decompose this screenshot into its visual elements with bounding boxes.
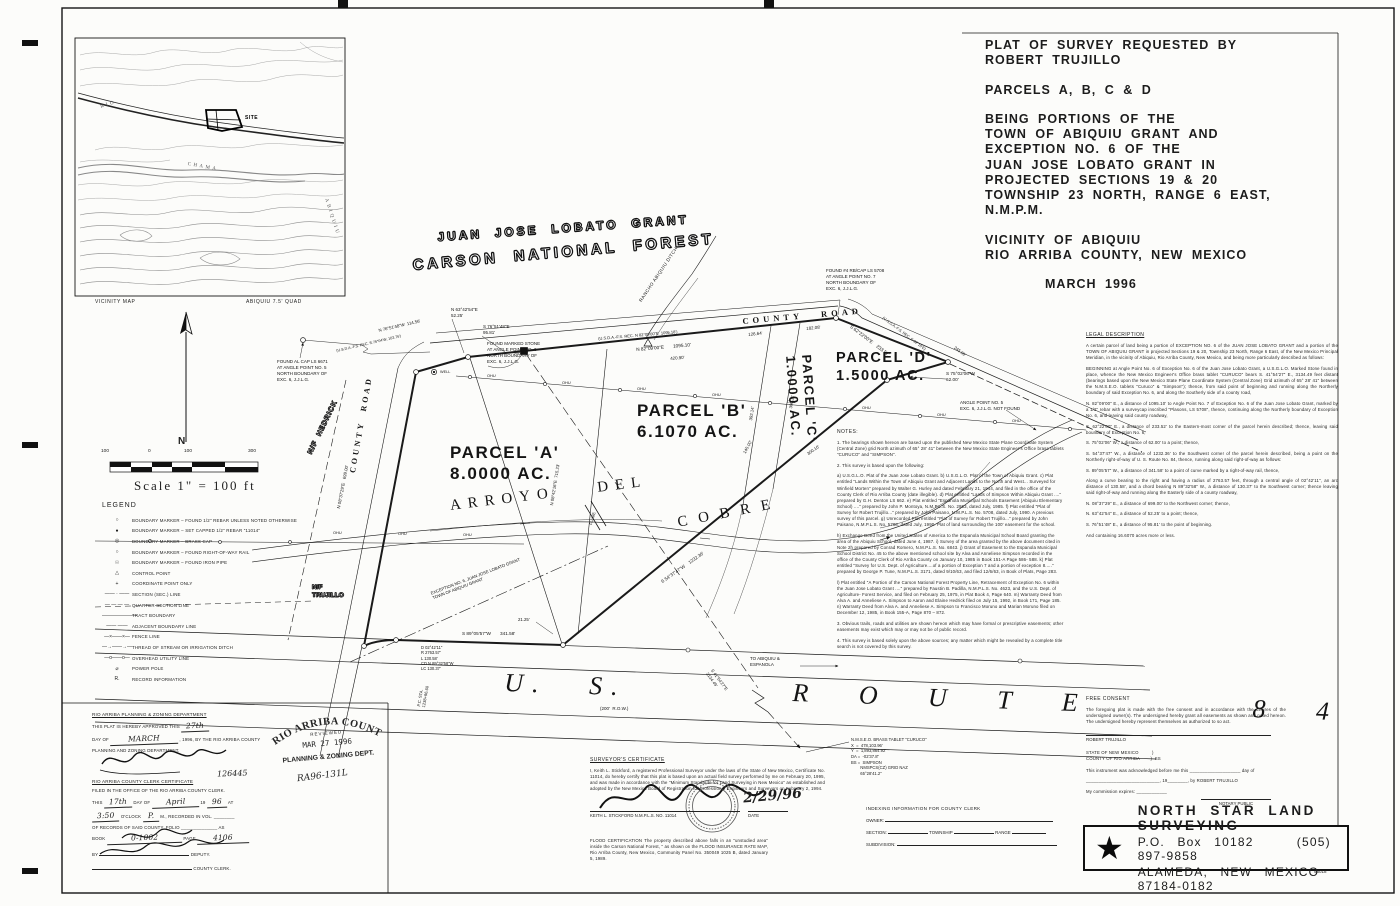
clerk-oclock: O'CLOCK	[121, 814, 141, 819]
legend-symbol-icon: ○	[102, 517, 132, 523]
map-annotation: OHU	[463, 532, 472, 537]
legend-symbol-icon: ———————	[102, 613, 132, 619]
legend-symbol-icon: ☉	[102, 560, 132, 566]
legend-item: — — — — QUARTER SECTION LINE	[102, 600, 297, 611]
legend-item-label: COORDINATE POINT ONLY	[132, 581, 193, 586]
surveyor-heading: SURVEYOR'S CERTIFICATE	[590, 757, 825, 763]
map-annotation: OHU	[712, 392, 721, 397]
legend-symbol-icon: —→——→—	[102, 644, 132, 650]
approval-line-1: THIS PLAT IS HEREBY APPROVED THIS 27th	[92, 721, 292, 732]
clerk-filed-line: FILED IN THE OFFICE OF THE RIO ARRIBA CO…	[92, 788, 292, 794]
map-annotation: PARCEL 'B' 6.1070 AC.	[637, 400, 746, 443]
legend-item-label: SECTION (SEC.) LINE	[132, 592, 181, 597]
approval-line-3: PLANNING AND ZONING DEPARTMENT.	[92, 748, 292, 754]
legend-item-label: FENCE LINE	[132, 634, 160, 639]
legend-symbol-icon: —— · ——	[102, 591, 132, 597]
scale-label: Scale 1" = 100 ft	[134, 478, 256, 494]
legend-symbol-icon: R.	[102, 676, 132, 682]
legend-symbol-icon: +	[102, 581, 132, 587]
clerk-page-handwritten: 4106	[197, 833, 249, 846]
notes-paragraph: 1. The bearings shown hereon are based u…	[837, 440, 1064, 458]
legend-item: ◎ BOUNDARY MARKER – BRASS CAP	[102, 536, 297, 547]
title-being-line: PROJECTED SECTIONS 19 & 20	[985, 173, 1335, 188]
legend-item: R. RECORD INFORMATION	[102, 674, 297, 685]
title-request: PLAT OF SURVEY REQUESTED BY	[985, 38, 1335, 53]
legal-paragraph: S. 54°37'47" W., a distance of 1232.36' …	[1086, 451, 1338, 463]
map-annotation: PARCEL 'D' 1.5000 AC.	[836, 349, 932, 385]
notes-block: NOTES: 1. The bearings shown hereon are …	[837, 429, 1064, 654]
map-annotation: D 02°42'11" R 2763.57' L 130.58' CD N 89…	[421, 645, 454, 672]
firm-address-line: P.O. Box 10182 (505) 897-9858	[1138, 835, 1347, 863]
approval-line-2: DAY OF MARCH , 1996, BY THE RIO ARRIBA C…	[92, 734, 292, 745]
title-being: BEING PORTIONS OF THETOWN OF ABIQUIU GRA…	[985, 112, 1335, 219]
title-vicinity: VICINITY OF ABIQUIURIO ARRIBA COUNTY, NE…	[985, 233, 1335, 264]
legend-item-label: BOUNDARY MARKER – FOUND IRON PIPE	[132, 560, 227, 565]
approval-post: , 1996, BY THE RIO ARRIBA COUNTY	[179, 737, 260, 742]
clerk-dayof: DAY OF	[133, 800, 150, 805]
legend-item-label: CONTROL POINT	[132, 571, 171, 576]
consent-county-line: COUNTY OF RIO ARRIBA ) SS	[1086, 756, 1286, 762]
legend-item-label: BOUNDARY MARKER – SET CAPPED 1/2" REBAR …	[132, 528, 260, 533]
scale-ticks: 1000100300	[110, 449, 258, 457]
clerk-book-label: BOOK	[92, 836, 105, 841]
title-vicinity-line: VICINITY OF ABIQUIU	[985, 233, 1335, 248]
map-annotation: OHU	[937, 412, 946, 417]
notes-paragraph: l) Plat entitled "A Portion of the Carso…	[837, 580, 1064, 617]
legal-paragraph: N. 63°42'54" E., a distance of 52.25' to…	[1086, 511, 1338, 517]
legal-paragraph: N. 82°09'00" E., a distance of 1095.10' …	[1086, 401, 1338, 419]
legal-paragraph: S. 76°51'48" E., a distance of 95.81' to…	[1086, 522, 1338, 528]
legend-item: ⌀ POWER POLE	[102, 663, 297, 674]
legal-paragraph: A certain parcel of land being a portion…	[1086, 343, 1338, 361]
legend-symbol-icon: —×——×—	[102, 634, 132, 640]
map-annotation: WELL	[440, 370, 450, 375]
scale-tick: 0	[148, 449, 151, 454]
notes-paragraph: h) Exchange Deed from the United States …	[837, 533, 1064, 576]
clerk-this: THIS	[92, 800, 103, 805]
legend-symbol-icon: ⌀	[102, 666, 132, 672]
notes-paragraph: 3. Obvious trails, roads and utilities a…	[837, 621, 1064, 633]
legend-item: —ο——ο— OVERHEAD UTILITY LINE	[102, 653, 297, 664]
approval-signature-area: 126445	[92, 757, 292, 779]
map-annotation: FOUND AL CAP LS 6671 AT ANGLE POINT NO. …	[277, 359, 328, 382]
north-star-icon: ★	[1095, 832, 1124, 864]
firm-text: NORTH STAR LAND SURVEYING P.O. Box 10182…	[1138, 803, 1347, 893]
approval-heading: RIO ARRIBA PLANNING & ZONING DEPARTMENT	[92, 712, 292, 717]
legal-paragraph: S. 75°02'06" W., a distance of 62.00' to…	[1086, 440, 1338, 446]
clerk-book-line: BOOK 0-1002 PAGE 4106	[92, 833, 292, 844]
legend-symbol-icon: —ο——ο—	[102, 655, 132, 661]
notes-paragraphs: 1. The bearings shown hereon are based u…	[837, 440, 1064, 650]
clerk-clerk-line: COUNTY CLERK.	[92, 864, 292, 872]
clerk-day-handwritten: 17th	[104, 796, 132, 808]
approval-day-handwritten: 27th	[181, 720, 209, 732]
title-being-line: TOWNSHIP 23 NORTH, RANGE 6 EAST, N.M.P.M…	[985, 188, 1335, 219]
scale-tick: 100	[184, 449, 192, 454]
approval-pre: THIS PLAT IS HEREBY APPROVED THIS	[92, 724, 180, 729]
map-annotation: 420.90'	[670, 355, 685, 362]
map-annotation: OHU	[333, 530, 342, 535]
indexing-block: INDEXING INFORMATION FOR COUNTY CLERK OW…	[866, 806, 1081, 847]
map-annotation: S 75°02'06"W 62.00'	[946, 371, 975, 383]
clerk-yr2-handwritten: 96	[207, 796, 227, 807]
map-annotation: S 76°51'48"E 95.81'	[483, 324, 510, 336]
clerk-deputy-line: BY DEPUTY.	[92, 850, 292, 858]
clerk-clerk-label: COUNTY CLERK.	[193, 866, 231, 871]
legal-paragraph: And containing 16.6070 acres more or les…	[1086, 533, 1338, 539]
clerk-at: AT	[228, 800, 234, 805]
legend-item-label: BOUNDARY MARKER – FOUND RIGHT-OF-WAY RAI…	[132, 550, 250, 555]
title-date: MARCH 1996	[1045, 277, 1335, 292]
indexing-section-row: SECTION: TOWNSHIP RANGE	[866, 828, 1081, 835]
legend-item-label: ADJACENT BOUNDARY LINE	[132, 624, 196, 629]
notes-paragraph: a) U.S.G.L.O. Plat of the Juan Jose Loba…	[837, 473, 1064, 528]
legend-symbol-icon: ○	[102, 549, 132, 555]
map-annotation: ANGLE POINT NO. 5 EXC. 6, J.J.L.G. NOT F…	[960, 400, 1020, 412]
firm-pobox: P.O. Box 10182	[1138, 835, 1254, 849]
surveyor-date-label: DATE	[748, 811, 788, 818]
indexing-section-label: SECTION:	[866, 830, 887, 835]
title-being-line: BEING PORTIONS OF THE	[985, 112, 1335, 127]
indexing-owner-row: OWNER:	[866, 816, 1081, 823]
consent-ack2: _____________________________, 19_______…	[1086, 778, 1286, 784]
legend-item: —— —— ADJACENT BOUNDARY LINE	[102, 621, 297, 632]
map-annotation: OHU	[1012, 418, 1021, 423]
legend-symbol-icon: ●	[102, 528, 132, 534]
indexing-title: INDEXING INFORMATION FOR COUNTY CLERK	[866, 806, 1081, 811]
notes-paragraph: 4. This survey is based solely upon the …	[837, 638, 1064, 650]
map-annotation: PARCEL 'A' 8.0000 AC.	[450, 442, 559, 485]
north-arrow-icon	[180, 312, 192, 442]
legal-description: LEGAL DESCRIPTION A certain parcel of la…	[1086, 332, 1338, 543]
surveyor-name-line: KEITH L. STICKFORD N.M.P.L.S. NO. 11014	[590, 811, 740, 818]
map-annotation: (200' R.O.W.)	[600, 706, 628, 712]
firm-name: NORTH STAR LAND SURVEYING	[1138, 803, 1347, 833]
clerk-recorded: M., RECORDED IN VOL. ________	[160, 814, 234, 819]
title-parcels: PARCELS A, B, C & D	[985, 83, 1335, 98]
clerk-time-line: 3:50 O'CLOCK P. M., RECORDED IN VOL. ___…	[92, 811, 292, 822]
clerk-date-line: THIS 17th DAY OF April 19 96 AT	[92, 797, 292, 808]
review-stamp: RIO ARRIBA COUNTY REVIEWED MAR 27 1996 P…	[264, 700, 390, 788]
north-label: N	[178, 436, 185, 447]
vicinity-quad-caption: ABIQUIU 7.5' QUAD	[246, 299, 302, 305]
clerk-heading: RIO ARRIBA COUNTY CLERK CERTIFICATE	[92, 779, 292, 784]
scale-bar	[110, 462, 258, 472]
legend-item-label: POWER POLE	[132, 666, 164, 671]
legal-paragraph: S. 62°22'00" E., a distance of 233.52' t…	[1086, 424, 1338, 436]
legend-item: —→——→— THREAD OF STREAM OR IRRIGATION DI…	[102, 642, 297, 653]
legend-symbol-icon: ◎	[102, 538, 132, 544]
stamp-date: MAR 27 1996	[302, 736, 353, 749]
title-vicinity-line: RIO ARRIBA COUNTY, NEW MEXICO	[985, 248, 1335, 263]
consent-expires: My commission expires: ____________	[1086, 789, 1286, 795]
map-annotation: OHU	[487, 373, 496, 378]
legend-title: LEGEND	[102, 502, 297, 509]
map-annotation: OHU	[398, 531, 407, 536]
legend-symbol-icon: —— ——	[102, 623, 132, 629]
legend-item-label: OVERHEAD UTILITY LINE	[132, 656, 189, 661]
legal-title: LEGAL DESCRIPTION	[1086, 332, 1338, 338]
map-annotation: N 63°42'54"E 52.25'	[451, 307, 478, 319]
notes-paragraph: 2. This survey is based upon the followi…	[837, 463, 1064, 469]
indexing-range-label: RANGE	[995, 830, 1011, 835]
legend-item: —×——×— FENCE LINE	[102, 632, 297, 643]
consent-owner-name: ROBERT TRUJILLO	[1086, 735, 1271, 742]
legend-item: ○ BOUNDARY MARKER – FOUND 1/2" REBAR UNL…	[102, 515, 297, 526]
title-being-line: JUAN JOSE LOBATO GRANT IN	[985, 158, 1335, 173]
legal-paragraph: S. 89°05'57" W., a distance of 341.58' t…	[1086, 468, 1338, 474]
legend-item: △ CONTROL POINT	[102, 568, 297, 579]
legal-paragraphs: A certain parcel of land being a portion…	[1086, 343, 1338, 539]
clerk-book-handwritten: 0-1002	[107, 832, 183, 845]
curuco-tablet-data: N.M.S.E.O. BRASS TABLET "CURUCO"X = 478,…	[851, 737, 961, 777]
approval-month-handwritten: MARCH	[110, 733, 178, 746]
legend-item-label: QUARTER SECTION LINE	[132, 603, 189, 608]
map-annotation: OHU	[562, 380, 571, 385]
title-block: PLAT OF SURVEY REQUESTED BY ROBERT TRUJI…	[985, 38, 1335, 292]
clerk-folio-line: OF RECORDS OF SAID COUNTY, FOLIO _______…	[92, 825, 292, 831]
map-annotation: FOUND #4 RB/CAP LS 5708 AT ANGLE POINT N…	[826, 268, 884, 291]
legend-item-label: TRACT BOUNDARY	[132, 613, 175, 618]
clerk-page-label: PAGE	[183, 836, 195, 841]
legend-item: ● BOUNDARY MARKER – SET CAPPED 1/2" REBA…	[102, 526, 297, 537]
vicinity-label: SITE	[245, 115, 258, 121]
clerk-by: BY	[92, 852, 98, 857]
map-annotation: N/F TRUJILLO	[312, 584, 344, 601]
map-annotation: OHU	[862, 405, 871, 410]
tablet-line: 65°28'41.2"	[851, 771, 961, 777]
legend-item-label: BOUNDARY MARKER – FOUND 1/2" REBAR UNLES…	[132, 518, 297, 523]
clerk-month-handwritten: April	[151, 796, 199, 808]
clerk-time-handwritten: 3:50	[92, 810, 120, 822]
legend-item: ○ BOUNDARY MARKER – FOUND RIGHT-OF-WAY R…	[102, 547, 297, 558]
legend-item-label: THREAD OF STREAM OR IRRIGATION DITCH	[132, 645, 233, 650]
indexing-subdivision-label: SUBDIVISION:	[866, 842, 896, 847]
clerk-deputy-label: DEPUTY.	[191, 852, 211, 857]
clerk-pm-handwritten: P.	[142, 810, 159, 821]
notes-title: NOTES:	[837, 429, 1064, 435]
map-annotation: OHU	[787, 399, 796, 404]
map-annotation: OHU	[637, 386, 646, 391]
stamp-reviewed: REVIEWED	[310, 729, 342, 737]
clerk-yr: 19	[200, 800, 205, 805]
consent-ack1: This instrument was acknowledged before …	[1086, 768, 1286, 774]
scale-tick: 100	[101, 449, 109, 454]
legend-item: ——————— TRACT BOUNDARY	[102, 610, 297, 621]
legend-symbol-icon: △	[102, 570, 132, 576]
legal-paragraph: BEGINNING at Angle Point No. 6 of Except…	[1086, 366, 1338, 396]
approval-block: RIO ARRIBA PLANNING & ZONING DEPARTMENT …	[92, 712, 292, 875]
legend-item-label: BOUNDARY MARKER – BRASS CAP	[132, 539, 212, 544]
legend-symbol-icon: — — — —	[102, 602, 132, 608]
legend-item: —— · —— SECTION (SEC.) LINE	[102, 589, 297, 600]
legal-paragraph: N. 08°37'29" E., a distance of 699.00' t…	[1086, 501, 1338, 507]
map-annotation: 21.25'	[518, 617, 530, 623]
approval-dayof: DAY OF	[92, 737, 109, 742]
sheet-number: 96018	[1314, 869, 1327, 874]
indexing-township-label: TOWNSHIP	[929, 830, 953, 835]
legal-paragraph: Along a curve bearing to the right and h…	[1086, 478, 1338, 496]
title-being-line: EXCEPTION NO. 6 OF THE	[985, 142, 1335, 157]
legend-items: ○ BOUNDARY MARKER – FOUND 1/2" REBAR UNL…	[102, 515, 297, 685]
indexing-subdivision-row: SUBDIVISION:	[866, 840, 1081, 847]
map-annotation: TO ABIQUIU & ESPANOLA	[750, 656, 780, 668]
plat-sheet: VICINITY MAP ABIQUIU 7.5' QUAD RIOCHAMAA…	[0, 0, 1400, 906]
stamp-dept: PLANNING & ZONING DEPT.	[282, 750, 374, 765]
approval-file-number: 126445	[212, 769, 253, 779]
legend-item-label: RECORD INFORMATION	[132, 677, 186, 682]
legend: LEGEND ○ BOUNDARY MARKER – FOUND 1/2" RE…	[102, 502, 297, 685]
firm-title-box: ★ NORTH STAR LAND SURVEYING P.O. Box 101…	[1083, 825, 1349, 871]
vicinity-map-caption: VICINITY MAP	[95, 299, 135, 305]
title-being-line: TOWN OF ABIQUIU GRANT AND	[985, 127, 1335, 142]
legend-item: + COORDINATE POINT ONLY	[102, 579, 297, 590]
scale-tick: 300	[248, 449, 256, 454]
map-annotation: S 89°05'57"W 341.58'	[462, 631, 515, 637]
vicinity-topo-map	[78, 42, 344, 285]
indexing-owner-label: OWNER:	[866, 818, 884, 823]
title-requester: ROBERT TRUJILLO	[985, 53, 1335, 68]
legend-item: ☉ BOUNDARY MARKER – FOUND IRON PIPE	[102, 557, 297, 568]
flood-certification: FLOOD CERTIFICATION The property describ…	[590, 838, 768, 862]
